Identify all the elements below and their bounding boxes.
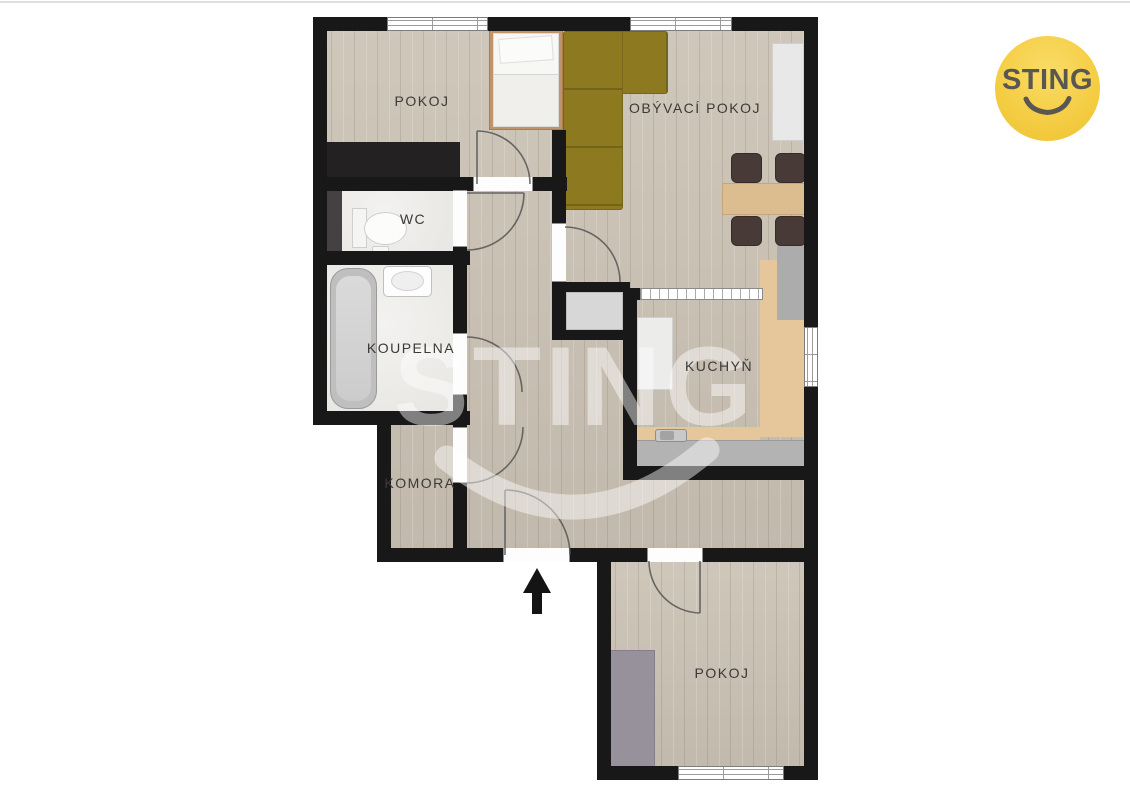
sofa-left-section: [563, 31, 623, 210]
room-label-obyvaci-pokoj: OBÝVACÍ POKOJ: [629, 100, 761, 116]
exterior-mask: [316, 425, 377, 565]
door-pokoj-top: [473, 177, 533, 191]
sting-logo: STING: [995, 36, 1100, 141]
fridge: [637, 317, 673, 390]
dining-chair: [775, 216, 806, 246]
bed-pillow: [498, 35, 554, 64]
wall-bottom-main: [570, 548, 647, 562]
dining-chair: [775, 153, 806, 183]
bed-blanket: [494, 74, 558, 126]
window-pokoj-top: [387, 17, 488, 31]
wc-shaft-niche: [327, 184, 342, 251]
wall-bottom-main: [377, 548, 503, 562]
wall-bathroom-bottom: [313, 411, 470, 425]
wardrobe-black: [327, 142, 460, 177]
wardrobe-gray-bottom-room: [608, 650, 655, 767]
door-entrance: [503, 548, 570, 562]
wall-hall-west: [453, 395, 467, 427]
room-label-wc: WC: [400, 211, 426, 227]
dining-table: [722, 183, 806, 215]
wall-right: [804, 17, 818, 327]
wall-kitchen-left: [623, 288, 637, 480]
wall-bottom-main: [703, 548, 818, 562]
cabinet-living-room: [772, 43, 804, 141]
wall-hall-west: [453, 483, 467, 548]
wall-kitchen-bottom: [623, 466, 804, 480]
door-bottom-room: [647, 548, 703, 562]
hall-closet: [566, 292, 623, 330]
dining-chair: [731, 216, 762, 246]
room-label-koupelna: KOUPELNA: [367, 340, 455, 356]
page-top-border: [0, 1, 1130, 3]
kitchen-counter-wood-right: [760, 260, 777, 437]
wall-closet-top: [566, 282, 630, 292]
washbasin-bowl: [391, 271, 424, 291]
window-bottom-room: [678, 766, 784, 780]
dining-chair: [731, 153, 762, 183]
wall-pokoj-bottom: [313, 177, 473, 191]
wall-bottom-room-bottom: [597, 766, 678, 780]
room-label-komora: KOMORA: [384, 475, 455, 491]
room-label-kuchyn: KUCHYŇ: [685, 358, 753, 374]
wall-closet-bottom: [566, 330, 630, 340]
bathtub-inner: [336, 276, 371, 401]
entrance-arrow-icon: [523, 568, 551, 614]
window-living-top: [630, 17, 732, 31]
window-kitchen-right: [804, 327, 818, 387]
kitchen-pass-through-window: [640, 288, 763, 300]
kitchen-sink-basin: [660, 431, 674, 440]
room-label-pokoj-bottom: POKOJ: [695, 665, 750, 681]
kitchen-counter-gray-bottom: [637, 440, 804, 466]
logo-smile-icon: [995, 36, 1100, 141]
wall-left: [313, 17, 327, 425]
door-wc: [453, 190, 467, 247]
wall-kitchen-top-stub: [623, 288, 640, 300]
wall-living-hall: [552, 282, 566, 340]
door-living-room: [552, 223, 566, 282]
wall-bottom-room-bottom: [784, 766, 818, 780]
wall-living-hall: [552, 130, 566, 223]
kitchen-counter-wood-right-lower: [777, 320, 804, 437]
wall-wc-bottom: [313, 251, 470, 265]
wall-bottom-room-left: [597, 562, 611, 766]
wall-right: [804, 387, 818, 780]
floor-plan-page: STING POKOJ OBÝVACÍ POKOJ WC KOUPELNA KU…: [0, 0, 1130, 799]
room-label-pokoj-top: POKOJ: [395, 93, 450, 109]
kitchen-counter-gray-right: [777, 233, 804, 320]
